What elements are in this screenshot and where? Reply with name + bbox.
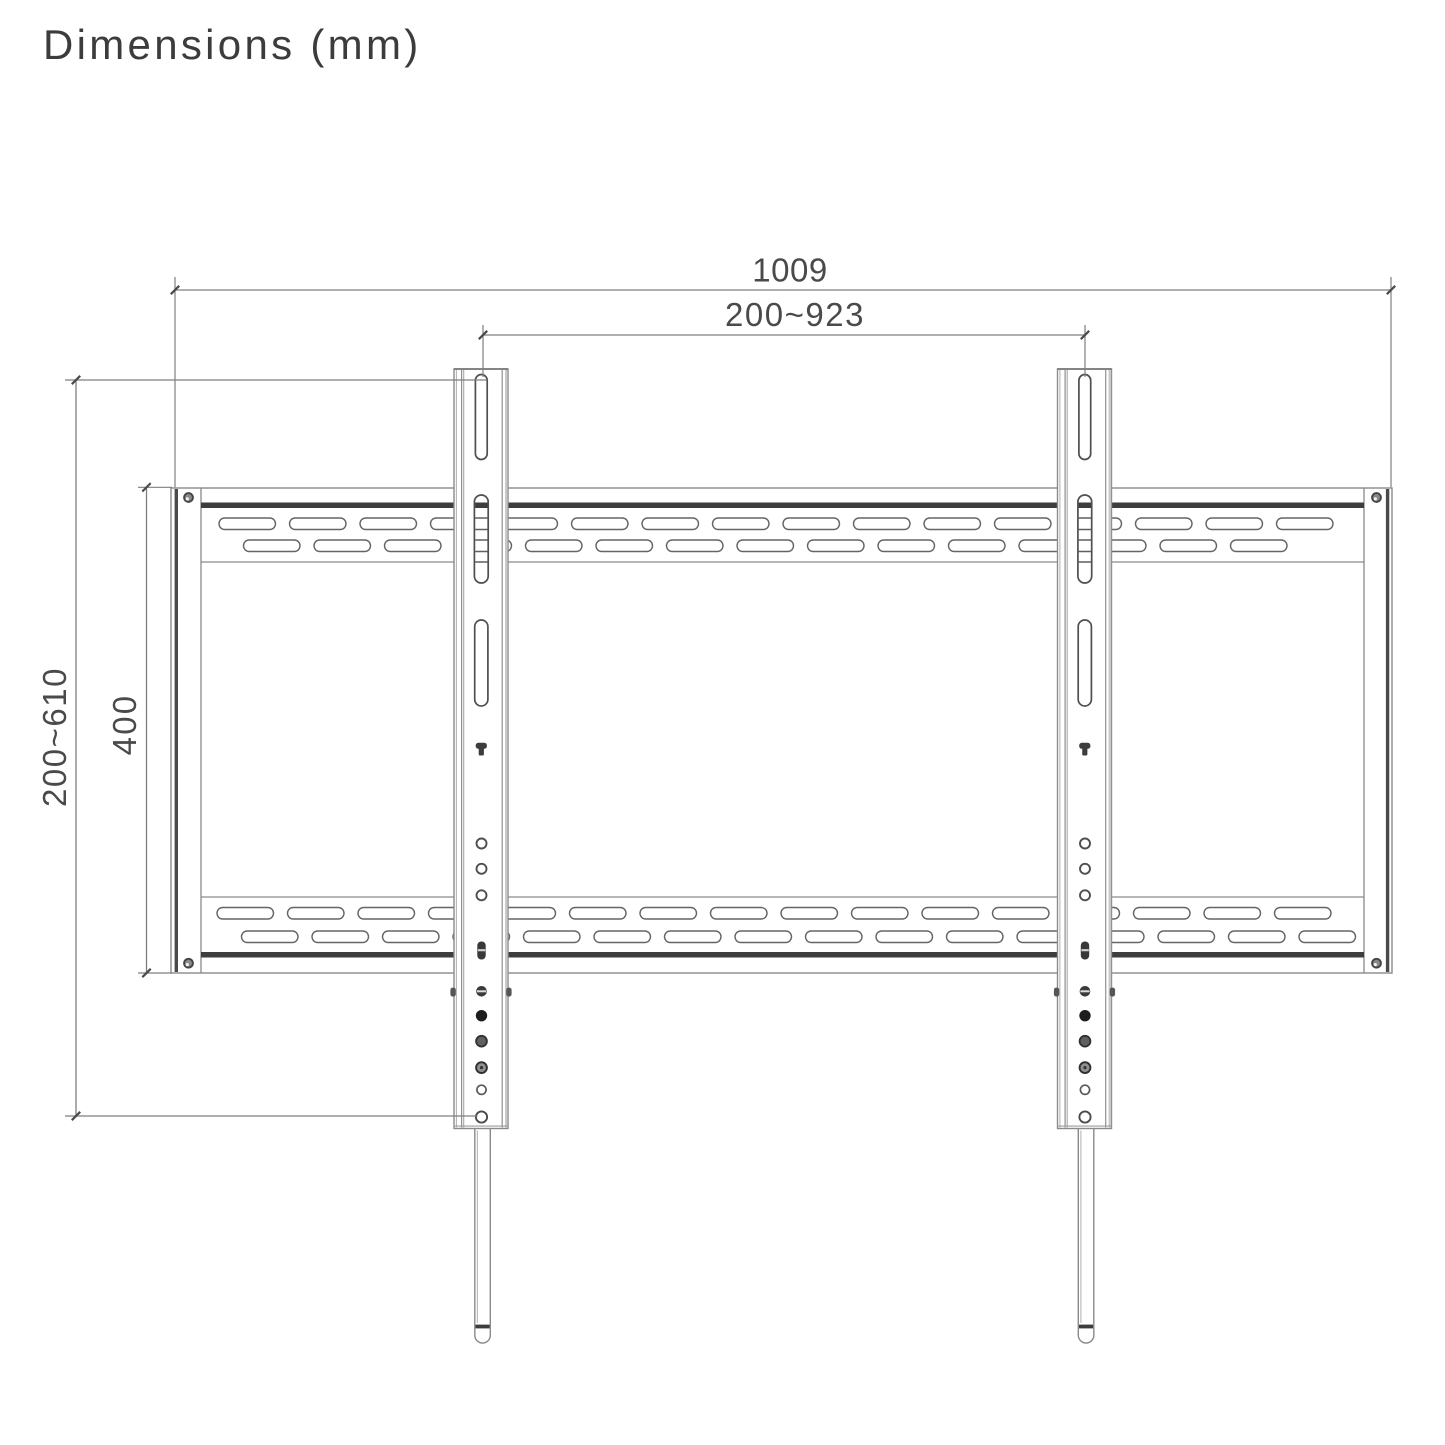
svg-text:400: 400 [106,694,143,756]
svg-text:200~923: 200~923 [725,296,865,333]
svg-text:200~610: 200~610 [36,667,73,807]
svg-text:1009: 1009 [752,252,827,289]
